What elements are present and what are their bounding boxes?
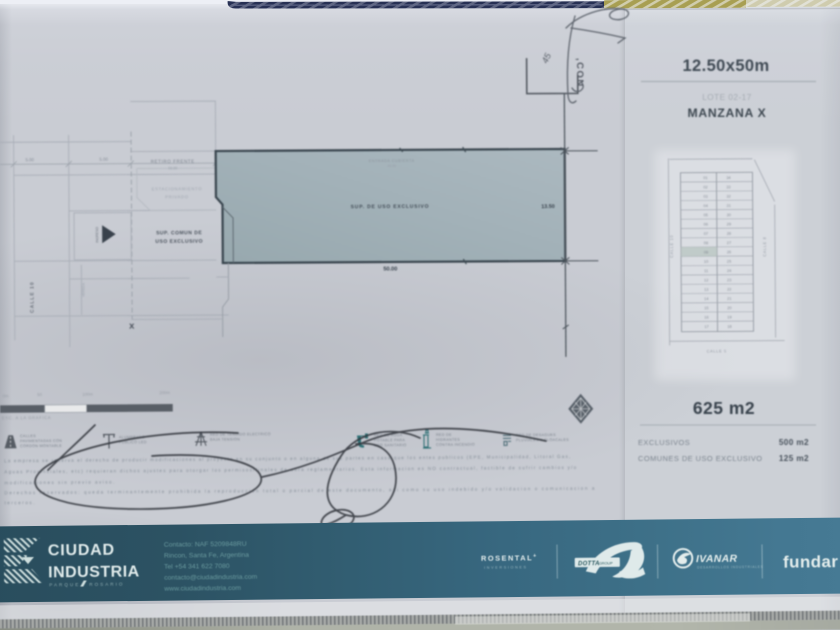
svg-text:USO EXCLUSIVO: USO EXCLUSIVO [155, 239, 203, 245]
svg-text:CALLE 10: CALLE 10 [29, 281, 35, 313]
svg-text:Rincon, Santa Fe, Argentina: Rincon, Santa Fe, Argentina [164, 552, 249, 560]
svg-text:32: 32 [726, 194, 730, 199]
svg-text:13: 13 [704, 287, 708, 292]
svg-text:50.00: 50.00 [168, 166, 177, 170]
svg-text:fundar: fundar [783, 552, 838, 572]
svg-text:02: 02 [703, 184, 707, 189]
svg-text:RED DE: RED DE [436, 433, 452, 437]
svg-text:GROUP: GROUP [599, 562, 613, 566]
svg-text:PAVIMENTADAS CON: PAVIMENTADAS CON [20, 439, 62, 443]
svg-text:CALLE 8: CALLE 8 [762, 236, 767, 256]
svg-text:11: 11 [704, 268, 708, 273]
svg-text:33: 33 [726, 184, 730, 189]
svg-text:18: 18 [727, 324, 731, 329]
svg-text:terceros.: terceros. [4, 500, 34, 505]
svg-text:09: 09 [704, 250, 708, 255]
svg-text:PRIVADO: PRIVADO [165, 194, 189, 199]
svg-text:CONTRA INCENDIO: CONTRA INCENDIO [436, 443, 475, 447]
svg-text:50.00: 50.00 [383, 266, 397, 272]
svg-text:EXCLUSIVOS: EXCLUSIVOS [638, 438, 690, 447]
svg-text:INGRESO: INGRESO [95, 227, 99, 243]
svg-text:01: 01 [703, 175, 707, 180]
svg-text:25: 25 [727, 259, 731, 264]
svg-text:200m: 200m [159, 390, 170, 395]
svg-text:CORDON MONTABLE: CORDON MONTABLE [20, 444, 62, 448]
svg-text:,CON: ,CON [574, 58, 585, 88]
svg-text:29: 29 [727, 222, 731, 227]
svg-text:21: 21 [727, 296, 731, 301]
svg-text:22: 22 [727, 287, 731, 292]
svg-text:16: 16 [704, 315, 708, 320]
svg-text:100m: 100m [82, 392, 93, 397]
svg-text:5.00: 5.00 [99, 157, 108, 162]
svg-text:50: 50 [37, 392, 42, 397]
svg-text:ROSENTAL+: ROSENTAL+ [481, 553, 538, 563]
svg-text:12: 12 [704, 277, 708, 282]
svg-text:ESC. A LA GRAFICA: ESC. A LA GRAFICA [2, 415, 51, 420]
svg-text:23: 23 [727, 277, 731, 282]
svg-text:LOTE 02-17: LOTE 02-17 [702, 93, 752, 102]
svg-text:HIDRANTES: HIDRANTES [436, 438, 460, 442]
svg-text:www.ciudadindustria.com: www.ciudadindustria.com [163, 585, 241, 593]
svg-text:contacto@ciudadindustria.com: contacto@ciudadindustria.com [164, 574, 257, 582]
svg-text:05: 05 [704, 212, 708, 217]
svg-text:08: 08 [704, 240, 708, 245]
svg-text:26: 26 [727, 249, 731, 254]
svg-text:12.50x50m: 12.50x50m [682, 57, 769, 75]
svg-text:Tel +54 341 622 7080: Tel +54 341 622 7080 [164, 563, 230, 571]
svg-text:ROSARIO: ROSARIO [89, 582, 124, 587]
svg-text:COMUNES DE USO EXCLUSIVO: COMUNES DE USO EXCLUSIVO [638, 454, 763, 463]
svg-text:06: 06 [704, 222, 708, 227]
svg-text:modificaciones sin previo avis: modificaciones sin previo aviso. [4, 479, 114, 485]
svg-text:45: 45 [540, 51, 554, 65]
svg-text:5.00: 5.00 [25, 157, 34, 162]
svg-text:x: x [129, 321, 135, 332]
svg-text:DESARROLLOS INDUSTRIALES: DESARROLLOS INDUSTRIALES [697, 565, 764, 570]
svg-text:500 m2: 500 m2 [779, 438, 809, 447]
svg-text:ENTRADA CUBIERTA: ENTRADA CUBIERTA [369, 159, 415, 163]
svg-text:PARQUE: PARQUE [49, 582, 80, 587]
svg-text:03: 03 [703, 194, 707, 199]
svg-text:125 m2: 125 m2 [779, 454, 809, 463]
svg-text:INVERSIONES: INVERSIONES [484, 565, 528, 569]
svg-text:40.00: 40.00 [387, 164, 396, 168]
svg-text:INDUSTRIA: INDUSTRIA [48, 563, 140, 581]
svg-text:DOTTA: DOTTA [578, 561, 600, 567]
svg-text:IVANAR: IVANAR [696, 554, 738, 565]
svg-text:625 m2: 625 m2 [693, 398, 755, 418]
svg-text:31: 31 [727, 203, 731, 208]
svg-text:27: 27 [727, 240, 731, 245]
svg-text:BAJA TENSION: BAJA TENSION [210, 437, 240, 441]
svg-text:17: 17 [704, 324, 708, 329]
svg-text:Contacto: NAF 5209848RU: Contacto: NAF 5209848RU [164, 541, 247, 549]
svg-text:Derechos reservados: queda ter: Derechos reservados: queda terminantemen… [4, 486, 594, 496]
svg-text:VEREDA: VEREDA [81, 282, 85, 297]
svg-text:13.50: 13.50 [541, 204, 555, 210]
svg-text:CALLE 5: CALLE 5 [707, 348, 727, 353]
svg-text:19: 19 [727, 314, 731, 319]
svg-text:0m: 0m [3, 393, 9, 398]
svg-text:SUP. COMUN DE: SUP. COMUN DE [156, 230, 202, 236]
svg-text:MANZANA X: MANZANA X [688, 106, 767, 120]
svg-text:CIUDAD: CIUDAD [48, 542, 115, 560]
svg-text:La empresa se reserva el derec: La empresa se reserva el derecho de prod… [4, 454, 570, 463]
svg-text:POTABLE PARA: POTABLE PARA [374, 438, 405, 442]
svg-text:ESTACIONAMIENTO: ESTACIONAMIENTO [152, 186, 203, 191]
svg-text:CALLES: CALLES [20, 434, 36, 438]
svg-text:07: 07 [704, 231, 708, 236]
svg-text:RETIRO FRENTE: RETIRO FRENTE [151, 159, 195, 164]
svg-text:CALLE 10: CALLE 10 [669, 235, 674, 258]
svg-text:28: 28 [727, 231, 731, 236]
svg-text:15: 15 [704, 305, 708, 310]
svg-text:SUP. DE USO EXCLUSIVO: SUP. DE USO EXCLUSIVO [351, 204, 430, 210]
